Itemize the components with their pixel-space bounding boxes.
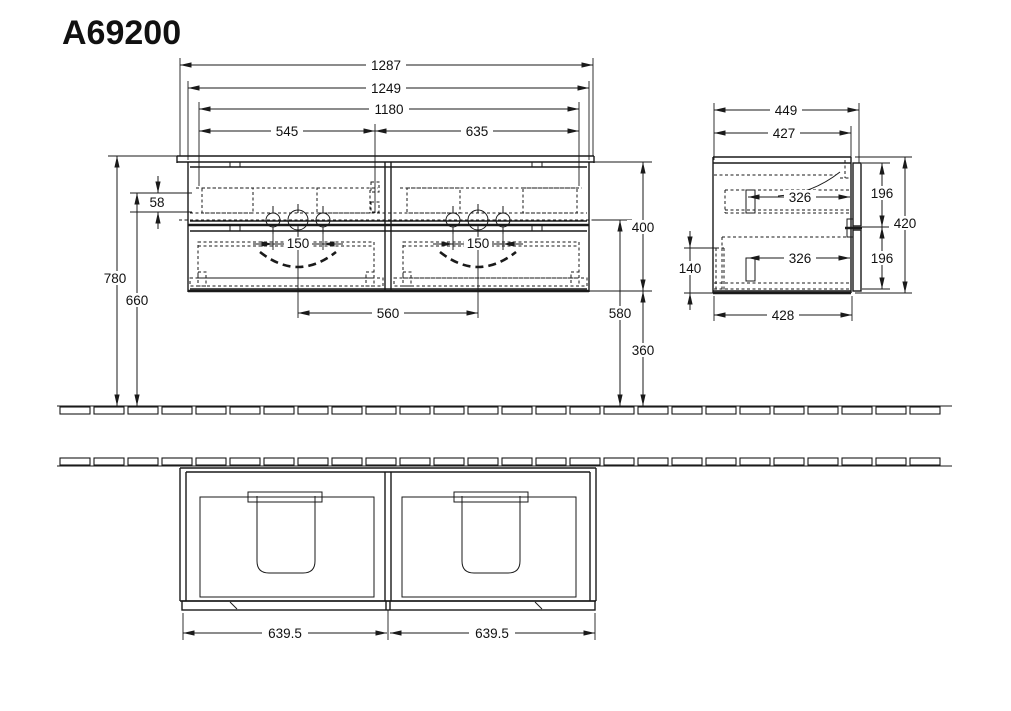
dim-front-height-780: 780 [104, 271, 127, 286]
dim-front-width-right: 635 [466, 124, 489, 139]
dim-tap-spacing-right: 150 [467, 236, 490, 251]
dim-rail-height-140: 140 [679, 261, 702, 276]
side-view: 449 427 326 326 428 196 196 420 140 [674, 103, 921, 323]
dim-front-width-overall: 1287 [371, 58, 401, 73]
dim-front-height-580: 580 [609, 306, 632, 321]
dim-drawer-front-top: 196 [871, 186, 894, 201]
front-view: 1287 1249 1180 545 635 58 780 660 400 58… [100, 58, 659, 406]
dim-plan-left: 639.5 [268, 626, 302, 641]
wall-hatch-line [57, 458, 952, 466]
dim-drawer-front-bottom: 196 [871, 251, 894, 266]
technical-drawing-page: A69200 [0, 0, 1011, 711]
dim-front-height-400: 400 [632, 220, 655, 235]
dim-front-height-360: 360 [632, 343, 655, 358]
dim-side-inner-326-top: 326 [789, 190, 812, 205]
plan-view: 639.5 639.5 [180, 468, 596, 641]
dim-side-height-420: 420 [894, 216, 917, 231]
dim-front-offset-58: 58 [149, 195, 164, 210]
dim-front-height-660: 660 [126, 293, 149, 308]
dim-side-depth-overall: 449 [775, 103, 798, 118]
dim-plan-right: 639.5 [475, 626, 509, 641]
plan-view-extension-lines [183, 610, 595, 640]
dim-front-width-left: 545 [276, 124, 299, 139]
dim-tap-spacing-left: 150 [287, 236, 310, 251]
product-code: A69200 [62, 14, 181, 52]
dim-front-width-carcass: 1249 [371, 81, 401, 96]
dim-side-inner-326-bottom: 326 [789, 251, 812, 266]
plan-view-labels: 639.5 639.5 [262, 626, 515, 641]
vanity-technical-drawing: A69200 [0, 0, 1011, 711]
floor-hatch-line [57, 406, 952, 414]
front-view-internals [179, 182, 594, 286]
dim-side-depth-428: 428 [772, 308, 795, 323]
dim-front-width-inner: 1180 [374, 102, 403, 117]
dim-basin-centres: 560 [377, 306, 400, 321]
dim-side-depth-427: 427 [773, 126, 796, 141]
